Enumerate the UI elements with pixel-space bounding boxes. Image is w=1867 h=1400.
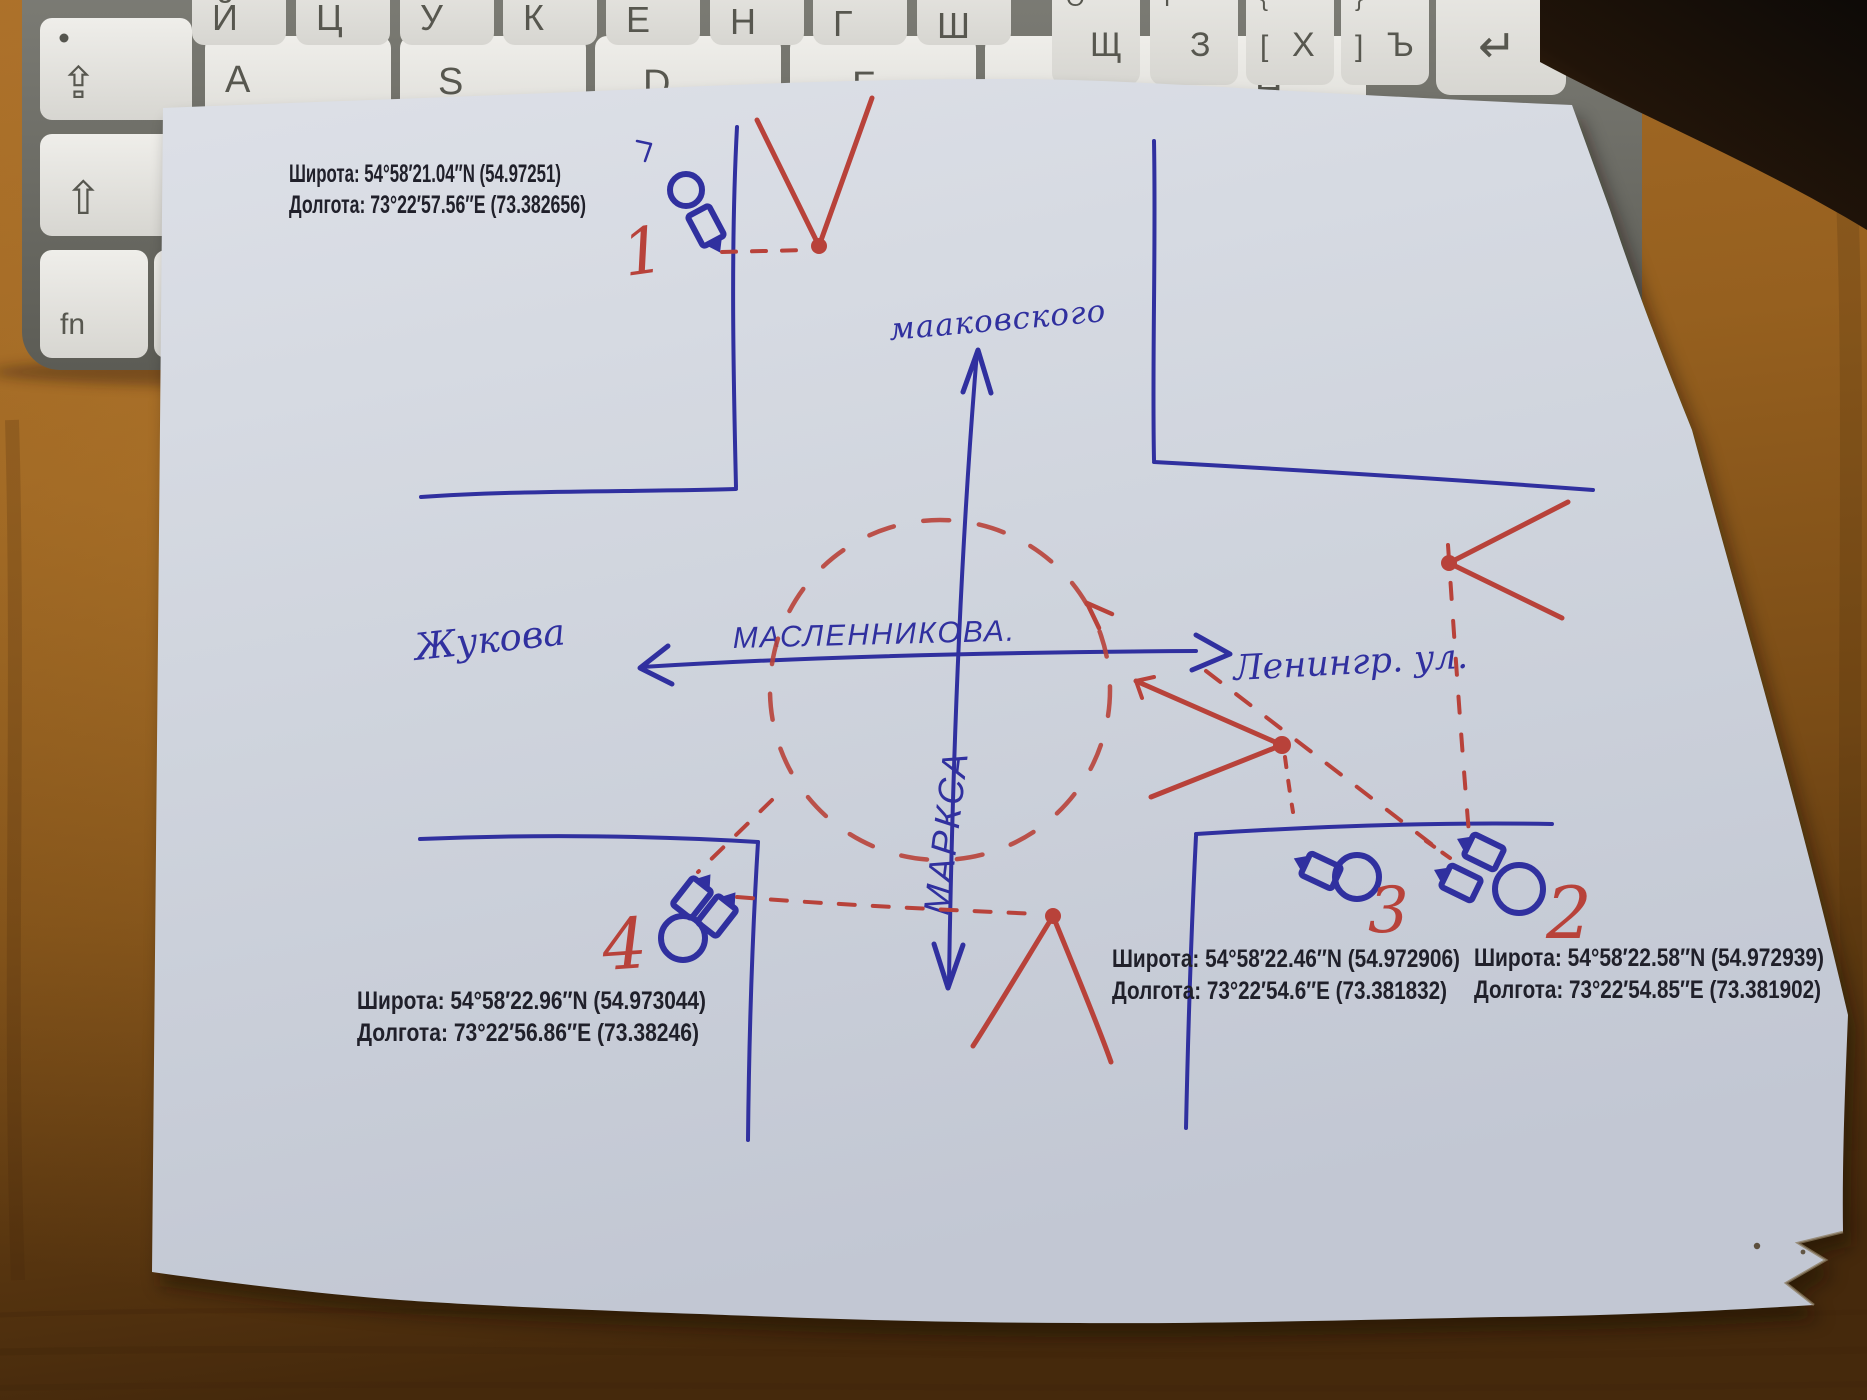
latitude-line: Широта: 54°58′22.58″N (54.972939) [1474, 944, 1824, 972]
key-main-label: К [523, 0, 544, 38]
key-main-label: A [225, 59, 251, 101]
key [296, 0, 390, 45]
key-main-label: У [420, 0, 444, 38]
fov-vertex-cam1 [811, 238, 827, 254]
key [606, 0, 700, 45]
longitude-line: Долгота: 73°22′54.85″E (73.381902) [1474, 976, 1821, 1004]
key-main-label: Н [730, 1, 756, 42]
key-side-label: ] [1355, 30, 1363, 63]
key-main-label: Ъ [1387, 26, 1414, 64]
camera-2-number: 2 [1545, 871, 1592, 955]
key-top-label: { [1260, 0, 1268, 12]
longitude-line: Долгота: 73°22′54.6″E (73.381832) [1112, 977, 1447, 1005]
capslock-indicator-dot [60, 34, 69, 43]
longitude-line: Долгота: 73°22′56.86″E (73.38246) [357, 1019, 699, 1047]
key [813, 0, 907, 45]
latitude-line: Широта: 54°58′21.04″N (54.97251) [289, 160, 561, 188]
key-top-label: O [1066, 0, 1085, 12]
paper-sheet [152, 79, 1848, 1323]
key [192, 0, 286, 45]
return-key-icon: ↵ [1478, 20, 1517, 72]
key [400, 0, 494, 45]
key-main-label: З [1190, 26, 1211, 64]
paper-speck [1801, 1250, 1806, 1255]
key-top-label: P [1164, 0, 1180, 12]
key-side-label: [ [1260, 30, 1269, 63]
key-main-label: Щ [1090, 26, 1122, 64]
sight-dash-cam1 [722, 250, 806, 252]
longitude-line: Долгота: 73°22′57.56″E (73.382656) [289, 191, 586, 219]
key-main-label: Х [1292, 26, 1315, 64]
fov-vertex-center [1273, 736, 1291, 754]
key-main-label: Ш [937, 5, 970, 46]
key-fn [40, 250, 148, 358]
latitude-line: Широта: 54°58′22.96″N (54.973044) [357, 987, 706, 1015]
camera-4-number: 4 [598, 902, 649, 987]
capslock-icon: ⇪ [60, 59, 97, 108]
latitude-line: Широта: 54°58′22.46″N (54.972906) [1112, 945, 1460, 973]
key-main-label: Ц [316, 0, 343, 38]
key-main-label: Е [626, 0, 650, 40]
shift-icon: ⇧ [64, 172, 103, 224]
key-top-label: } [1355, 0, 1363, 12]
key-main-label: Г [833, 3, 853, 44]
road-edge-ne [1153, 141, 1154, 460]
camera-3-number: 3 [1368, 874, 1409, 948]
paper-speck [1754, 1243, 1760, 1249]
fn-key-label: fn [60, 308, 85, 341]
photo-canvas: ⇪ ⇧ fn ctrl A S D F G H [0, 0, 1867, 1400]
photo-scene: ⇪ ⇧ fn ctrl A S D F G H [0, 0, 1867, 1400]
key-main-label: Й [212, 0, 238, 38]
key [503, 0, 597, 45]
key [710, 0, 804, 45]
